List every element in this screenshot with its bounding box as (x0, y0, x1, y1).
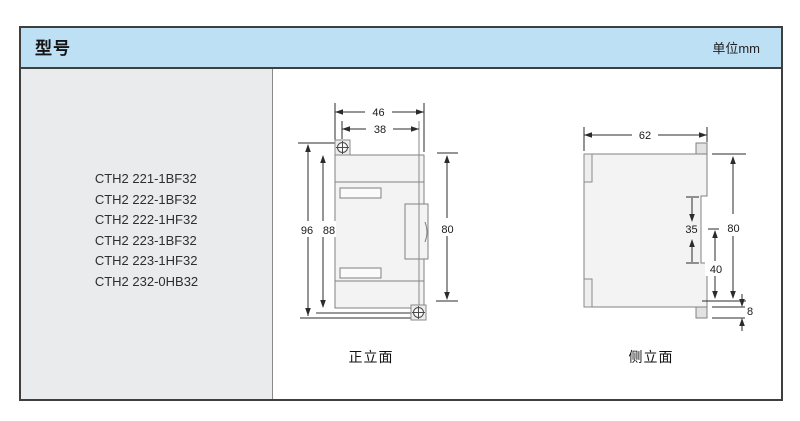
header-bar: 型号 单位mm (19, 26, 783, 69)
front-rail-lines (300, 313, 414, 318)
front-lower-slot (340, 268, 381, 278)
dim-front-body-height: 88 (323, 225, 335, 237)
model-list-panel: CTH2 221-1BF32 CTH2 222-1BF32 CTH2 222-1… (21, 69, 273, 399)
front-body-group (335, 155, 428, 308)
dim-side-tab-height: 8 (747, 306, 753, 318)
arrowhead (416, 109, 424, 115)
front-view-label: 正立面 (349, 349, 394, 365)
side-notch-bottom (584, 279, 592, 307)
page-title: 型号 (35, 28, 71, 67)
arrowhead (444, 155, 450, 163)
arrowhead (699, 132, 707, 138)
model-list: CTH2 221-1BF32 CTH2 222-1BF32 CTH2 222-1… (21, 169, 272, 292)
model-list-inner: CTH2 221-1BF32 CTH2 222-1BF32 CTH2 222-1… (95, 169, 198, 292)
dimension-drawings-svg: 46 38 96 88 80 正立面 (272, 68, 783, 401)
side-view: 62 35 40 80 8 侧立面 (584, 127, 753, 365)
unit-label: 单位mm (712, 28, 760, 67)
dim-side-din-clip: 35 (685, 224, 697, 236)
front-view: 46 38 96 88 80 正立面 (296, 103, 458, 365)
din-tab-top (696, 143, 707, 154)
side-notch-top (584, 154, 592, 182)
model-item: CTH2 222-1HF32 (95, 210, 198, 231)
arrowhead (739, 318, 745, 326)
screw-icon-top (335, 140, 350, 155)
model-item: CTH2 223-1HF32 (95, 251, 198, 272)
dim-front-panel-height: 80 (441, 224, 453, 236)
din-tab-bottom (696, 307, 707, 318)
arrowhead (584, 132, 592, 138)
model-item: CTH2 221-1BF32 (95, 169, 198, 190)
model-item: CTH2 232-0HB32 (95, 272, 198, 293)
arrowhead (739, 299, 745, 307)
arrowhead (320, 155, 326, 163)
dim-side-lower-depth: 40 (710, 264, 722, 276)
arrowhead (444, 292, 450, 300)
arrowhead (342, 126, 350, 132)
arrowhead (335, 109, 343, 115)
model-item: CTH2 223-1BF32 (95, 231, 198, 252)
front-connector (405, 204, 428, 259)
side-view-label: 侧立面 (629, 349, 674, 365)
page: { "header": { "title": "型号", "unit_label… (0, 0, 800, 421)
dim-side-depth: 62 (639, 130, 651, 142)
front-upper-slot (340, 188, 381, 198)
screw-icon-bottom (411, 305, 426, 320)
arrowhead (305, 144, 311, 152)
model-item: CTH2 222-1BF32 (95, 190, 198, 211)
arrowhead (712, 291, 718, 299)
arrowhead (712, 230, 718, 238)
arrowhead (730, 156, 736, 164)
arrowhead (320, 300, 326, 308)
dim-front-mount-width: 38 (374, 124, 386, 136)
dim-side-panel-height: 80 (727, 223, 739, 235)
dim-front-outer-width: 46 (372, 107, 384, 119)
arrowhead (305, 308, 311, 316)
arrowhead (730, 291, 736, 299)
dim-front-total-height: 96 (301, 225, 313, 237)
arrowhead (411, 126, 419, 132)
